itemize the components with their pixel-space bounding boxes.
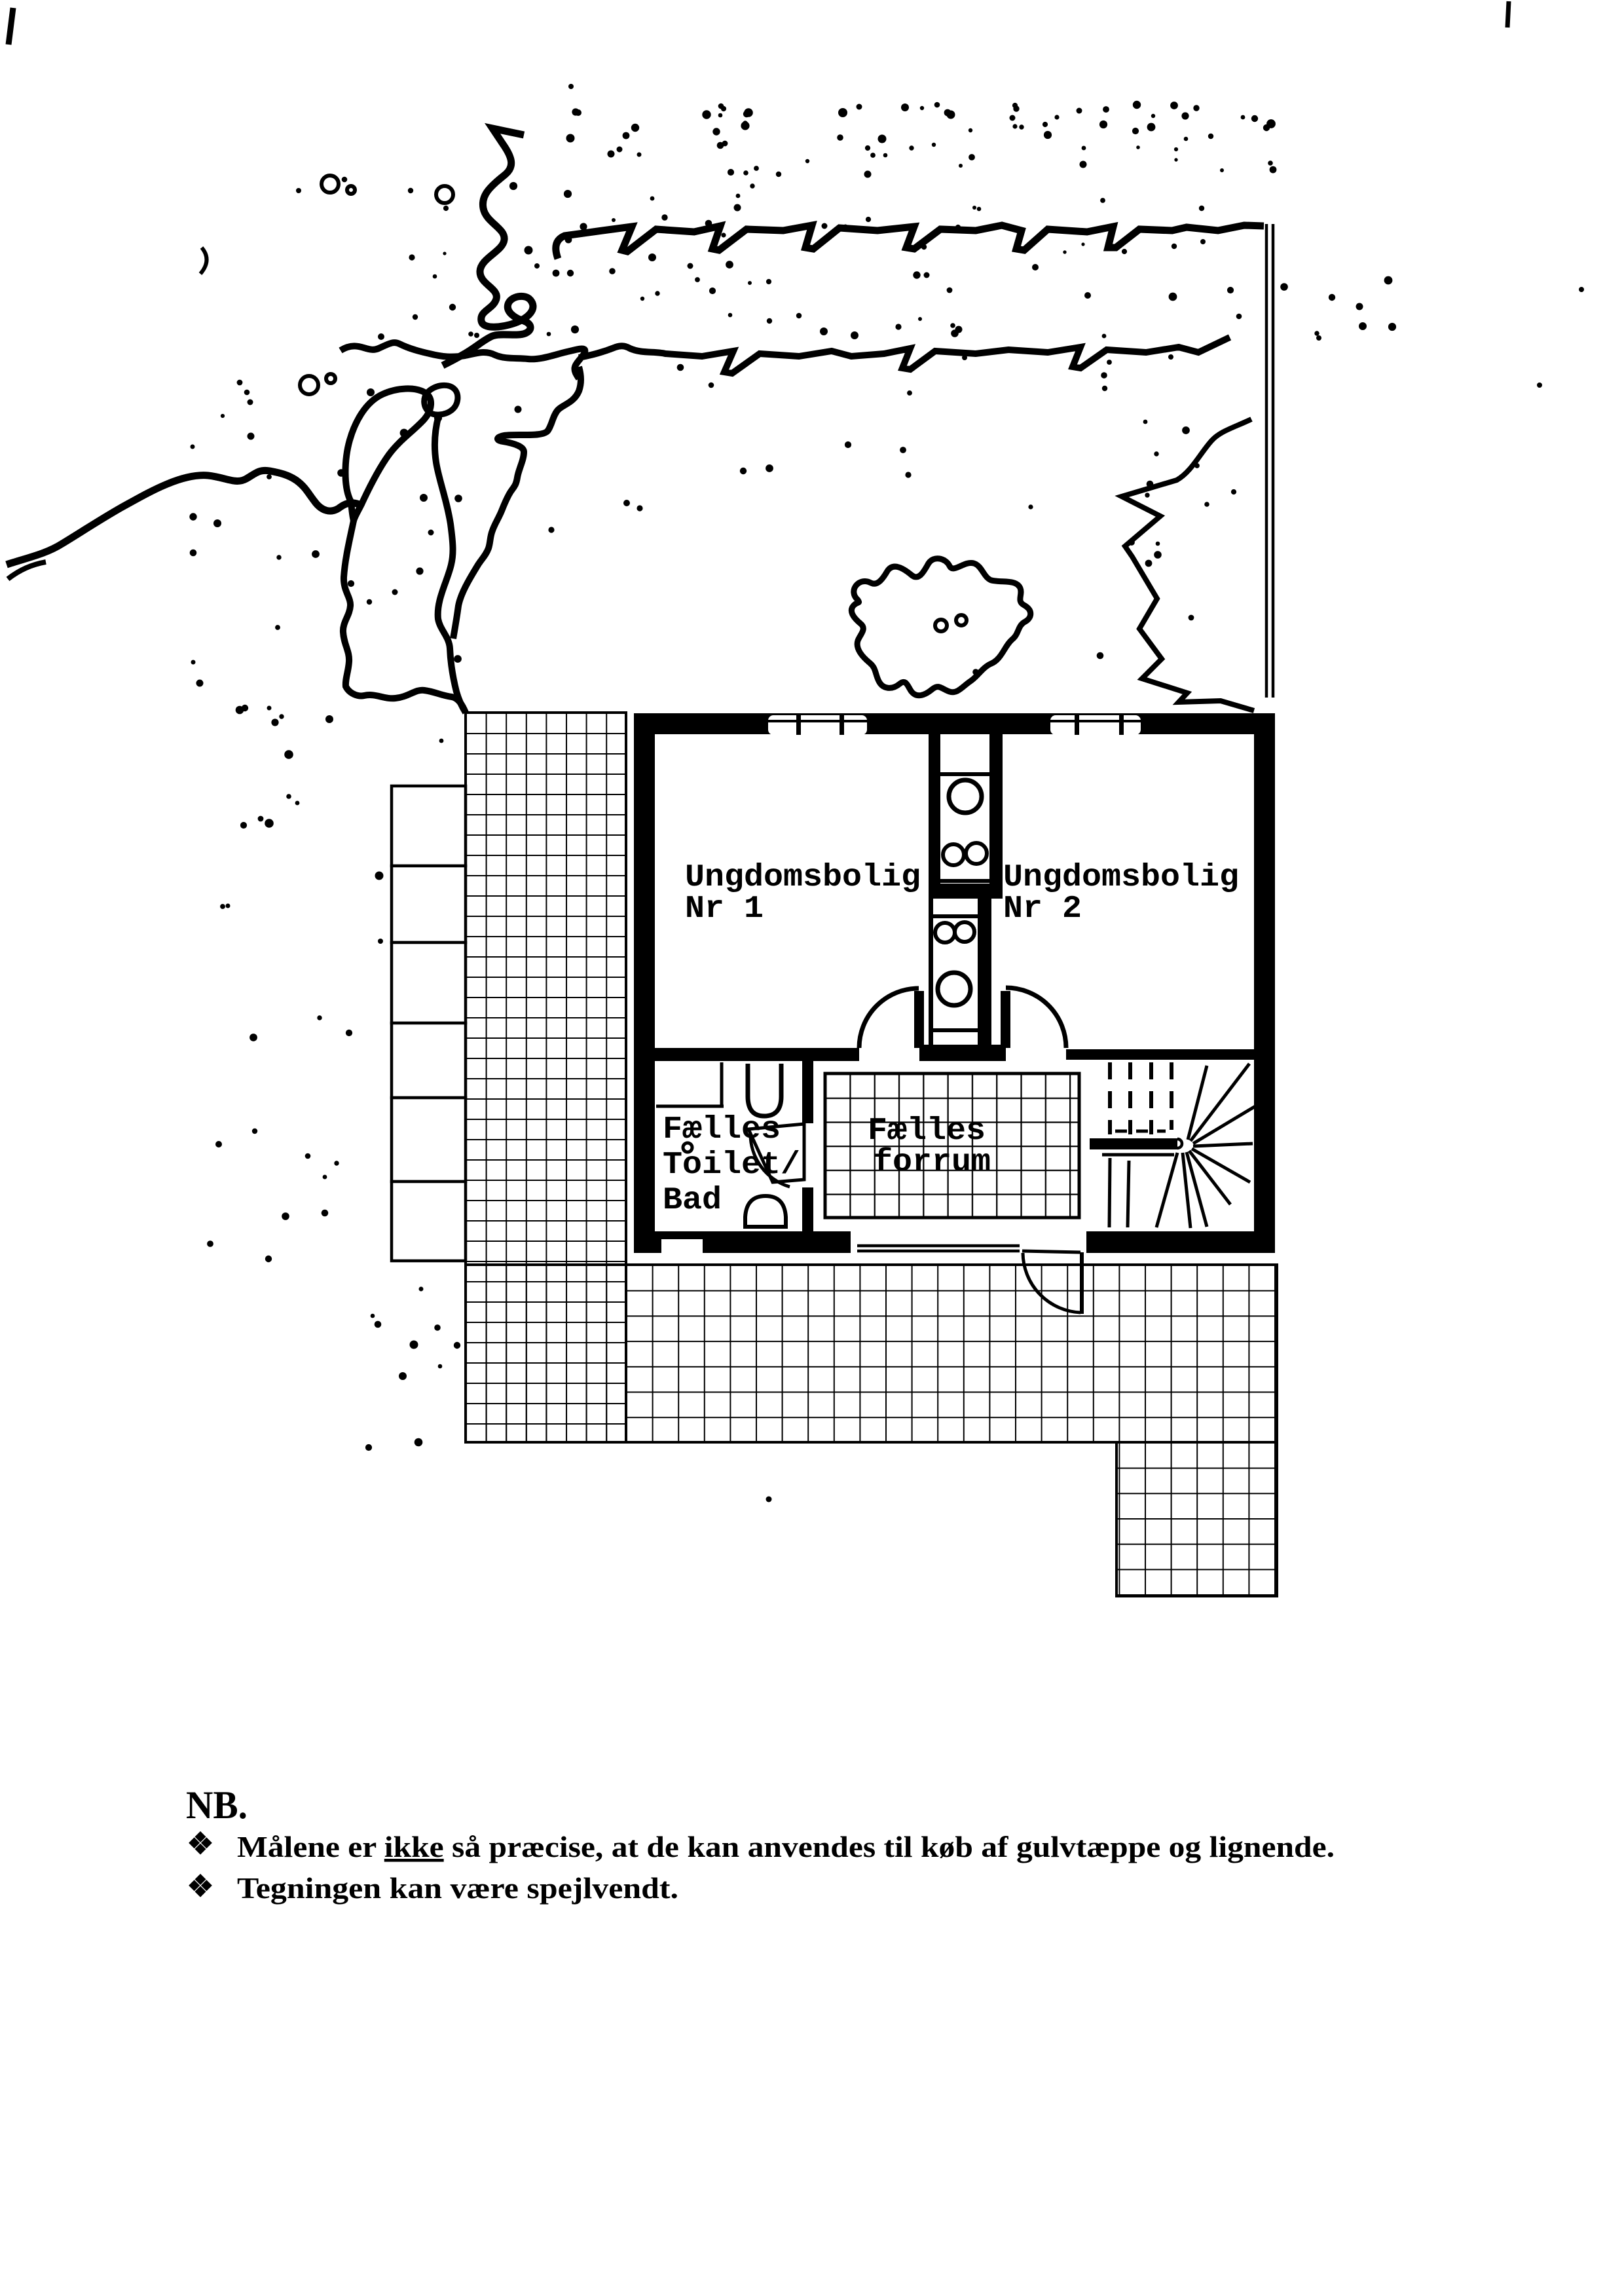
svg-text:forrum: forrum xyxy=(873,1145,991,1180)
svg-text:Nr 1: Nr 1 xyxy=(685,891,764,927)
svg-text:Ungdomsbolig: Ungdomsbolig xyxy=(1003,860,1239,895)
svg-text:Toilet/: Toilet/ xyxy=(663,1147,800,1183)
svg-text:Ungdomsbolig: Ungdomsbolig xyxy=(685,860,921,895)
svg-text:Fælles: Fælles xyxy=(663,1112,781,1147)
svg-text:NB.: NB. xyxy=(186,1783,248,1827)
svg-text:Nr 2: Nr 2 xyxy=(1003,891,1082,927)
svg-text:Målene er ikke så præcise, at: Målene er ikke så præcise, at de kan anv… xyxy=(237,1830,1335,1863)
svg-text:Tegningen kan være spejlvendt.: Tegningen kan være spejlvendt. xyxy=(237,1871,678,1905)
svg-text:Fælles: Fælles xyxy=(868,1113,986,1149)
svg-text:Bad: Bad xyxy=(663,1183,722,1218)
